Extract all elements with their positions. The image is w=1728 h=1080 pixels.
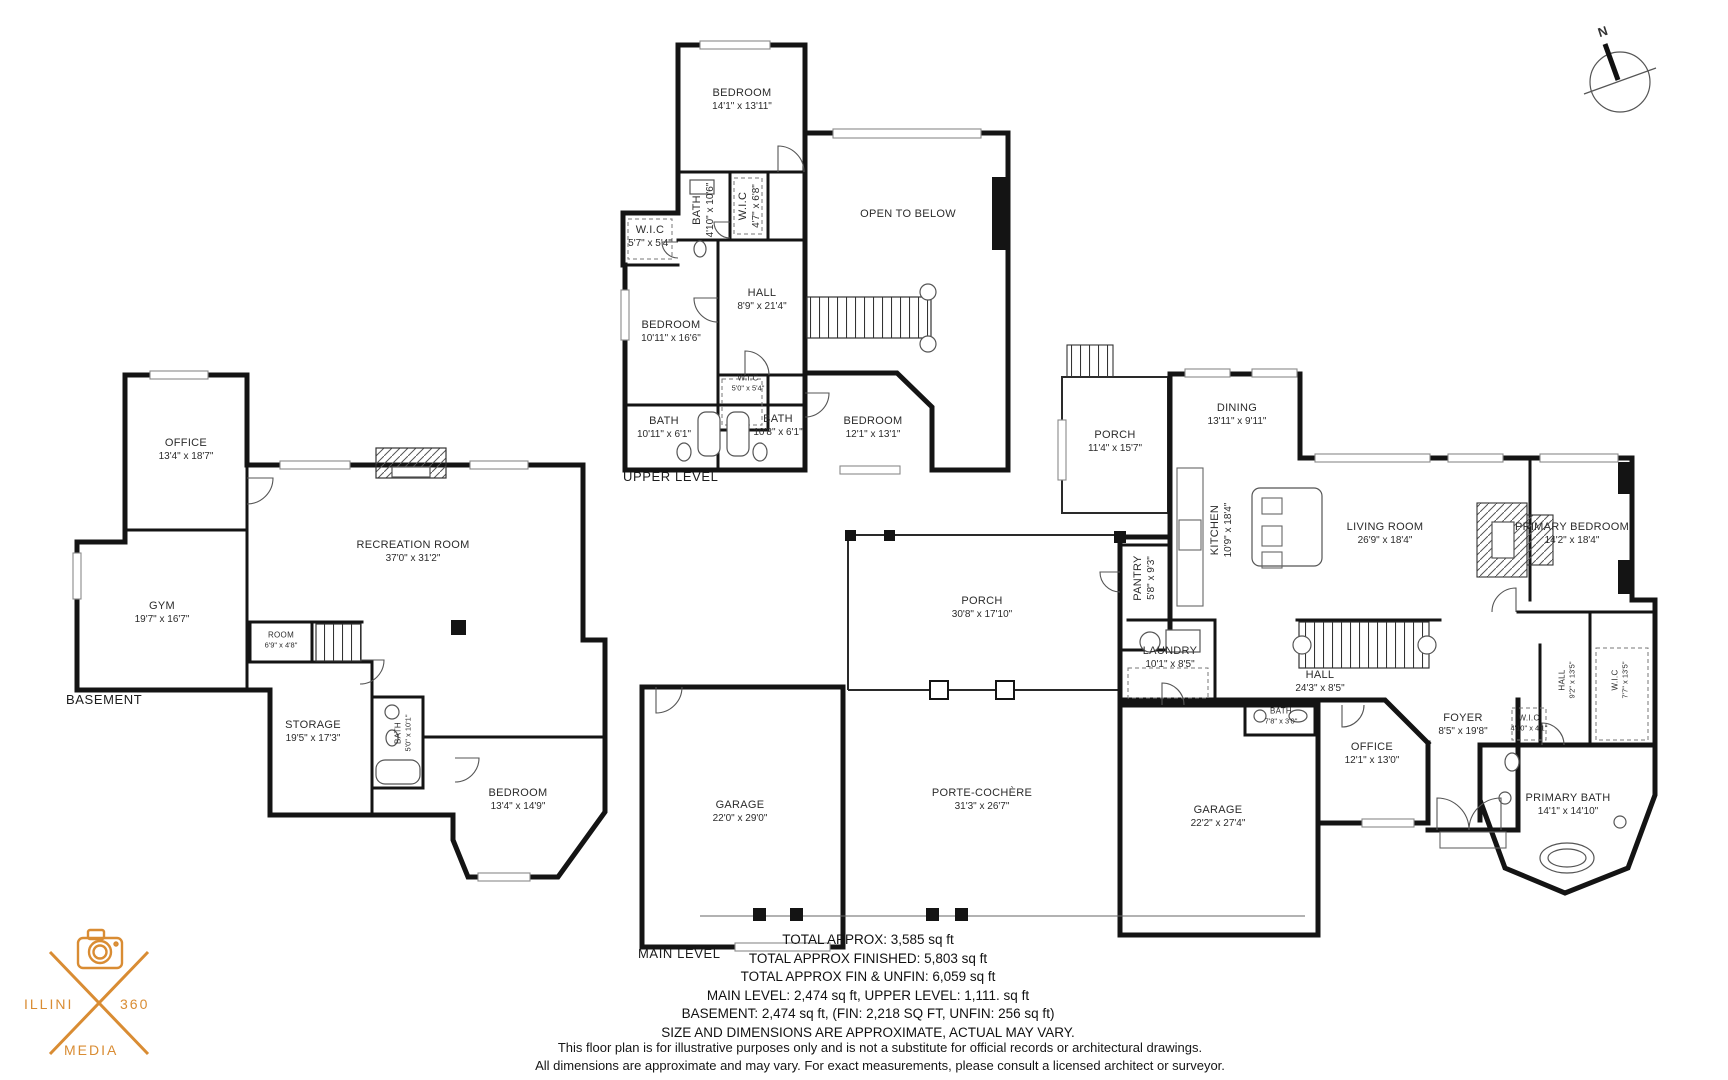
- room-label-upper-wic-3: W.I.C 5'0" x 5'4": [732, 373, 765, 392]
- summary-basement: BASEMENT: 2,474 sq ft, (FIN: 2,218 SQ FT…: [661, 1005, 1075, 1024]
- room-label-upper-wic-1: W.I.C 4'7" x 6'8": [737, 184, 763, 228]
- logo-word-illini: ILLINI: [24, 996, 73, 1012]
- room-label-foyer-wic: W.I.C 4'10" x 4'1": [1511, 713, 1548, 732]
- room-label-kitchen: KITCHEN 10'9" x 18'4": [1209, 503, 1235, 558]
- room-label-upper-bath-1: BATH 4'10" x 10'6": [691, 183, 717, 238]
- room-label-living-room: LIVING ROOM 26'9" x 18'4": [1347, 521, 1424, 547]
- room-label-basement-bedroom: BEDROOM 13'4" x 14'9": [489, 787, 548, 813]
- room-label-pantry: PANTRY 5'8" x 9'3": [1132, 555, 1158, 600]
- summary-total: TOTAL APPROX: 3,585 sq ft: [661, 931, 1075, 950]
- room-label-dining: DINING 13'11" x 9'11": [1208, 402, 1267, 428]
- room-label-upper-bedroom-1: BEDROOM 14'1" x 13'11": [712, 87, 772, 113]
- room-label-suite-hall: HALL 9'2" x 13'5": [1557, 662, 1576, 699]
- floor-plan-page: UPPER LEVEL BASEMENT MAIN LEVEL BEDROOM …: [0, 0, 1728, 1080]
- room-label-upper-bedroom-2: BEDROOM 10'11" x 16'6": [641, 319, 701, 345]
- room-label-upper-bath-2: BATH 10'11" x 6'1": [637, 415, 691, 441]
- room-label-main-office: OFFICE 12'1" x 13'0": [1345, 741, 1400, 767]
- room-label-upper-hall: HALL 8'9" x 21'4": [737, 287, 786, 313]
- room-label-upper-wic-2: W.I.C 5'7" x 5'4": [628, 224, 672, 250]
- room-label-primary-bedroom: PRIMARY BEDROOM 14'2" x 18'4": [1515, 521, 1629, 547]
- room-label-foyer: FOYER 8'5" x 19'8": [1438, 712, 1487, 738]
- room-label-basement-office: OFFICE 13'4" x 18'7": [159, 437, 214, 463]
- compass-icon: [1584, 44, 1656, 112]
- room-label-side-porch: PORCH 11'4" x 15'7": [1088, 429, 1142, 455]
- room-label-main-bath: BATH 7'8" x 3'0": [1265, 706, 1298, 725]
- disclaimer-line-1: This floor plan is for illustrative purp…: [535, 1039, 1225, 1057]
- summary-levels: MAIN LEVEL: 2,474 sq ft, UPPER LEVEL: 1,…: [661, 987, 1075, 1006]
- logo-word-media: MEDIA: [64, 1042, 118, 1058]
- square-footage-summary: TOTAL APPROX: 3,585 sq ft TOTAL APPROX F…: [661, 931, 1075, 1043]
- summary-fin-unfin: TOTAL APPROX FIN & UNFIN: 6,059 sq ft: [661, 968, 1075, 987]
- room-label-basement-room: ROOM 6'9" x 4'8": [265, 630, 298, 649]
- room-label-main-hall: HALL 24'3" x 8'5": [1295, 669, 1344, 695]
- logo-word-360: 360: [120, 996, 149, 1012]
- upper-level-title: UPPER LEVEL: [623, 469, 718, 484]
- camera-icon: [78, 930, 122, 968]
- upper-level-walls: [621, 41, 1008, 474]
- summary-finished: TOTAL APPROX FINISHED: 5,803 sq ft: [661, 950, 1075, 969]
- room-label-basement-bath: BATH 5'0" x 10'1": [393, 715, 412, 752]
- room-label-storage: STORAGE 19'5" x 17'3": [285, 719, 341, 745]
- room-label-big-porch: PORCH 30'8" x 17'10": [952, 595, 1012, 621]
- room-label-garage-2: GARAGE 22'2" x 27'4": [1191, 804, 1246, 830]
- disclaimer-text: This floor plan is for illustrative purp…: [535, 1039, 1225, 1075]
- room-label-primary-wic: W.I.C 7'7" x 13'5": [1610, 662, 1629, 699]
- room-label-upper-bath-3: BATH 10'8" x 6'1": [753, 413, 802, 439]
- room-label-upper-bedroom-3: BEDROOM 12'1" x 13'1": [844, 415, 903, 441]
- basement-title: BASEMENT: [66, 692, 142, 707]
- room-label-primary-bath: PRIMARY BATH 14'1" x 14'10": [1526, 792, 1611, 818]
- disclaimer-line-2: All dimensions are approximate and may v…: [535, 1057, 1225, 1075]
- room-label-open-to-below: OPEN TO BELOW: [860, 208, 956, 222]
- room-label-garage-1: GARAGE 22'0" x 29'0": [713, 799, 768, 825]
- room-label-laundry: LAUNDRY 10'1" x 8'5": [1143, 645, 1197, 671]
- room-label-porte-cochere: PORTE-COCHÈRE 31'3" x 26'7": [932, 787, 1032, 813]
- room-label-recreation-room: RECREATION ROOM 37'0" x 31'2": [356, 539, 469, 565]
- room-label-basement-gym: GYM 19'7" x 16'7": [135, 600, 190, 626]
- floor-plan-drawing: [0, 0, 1728, 1080]
